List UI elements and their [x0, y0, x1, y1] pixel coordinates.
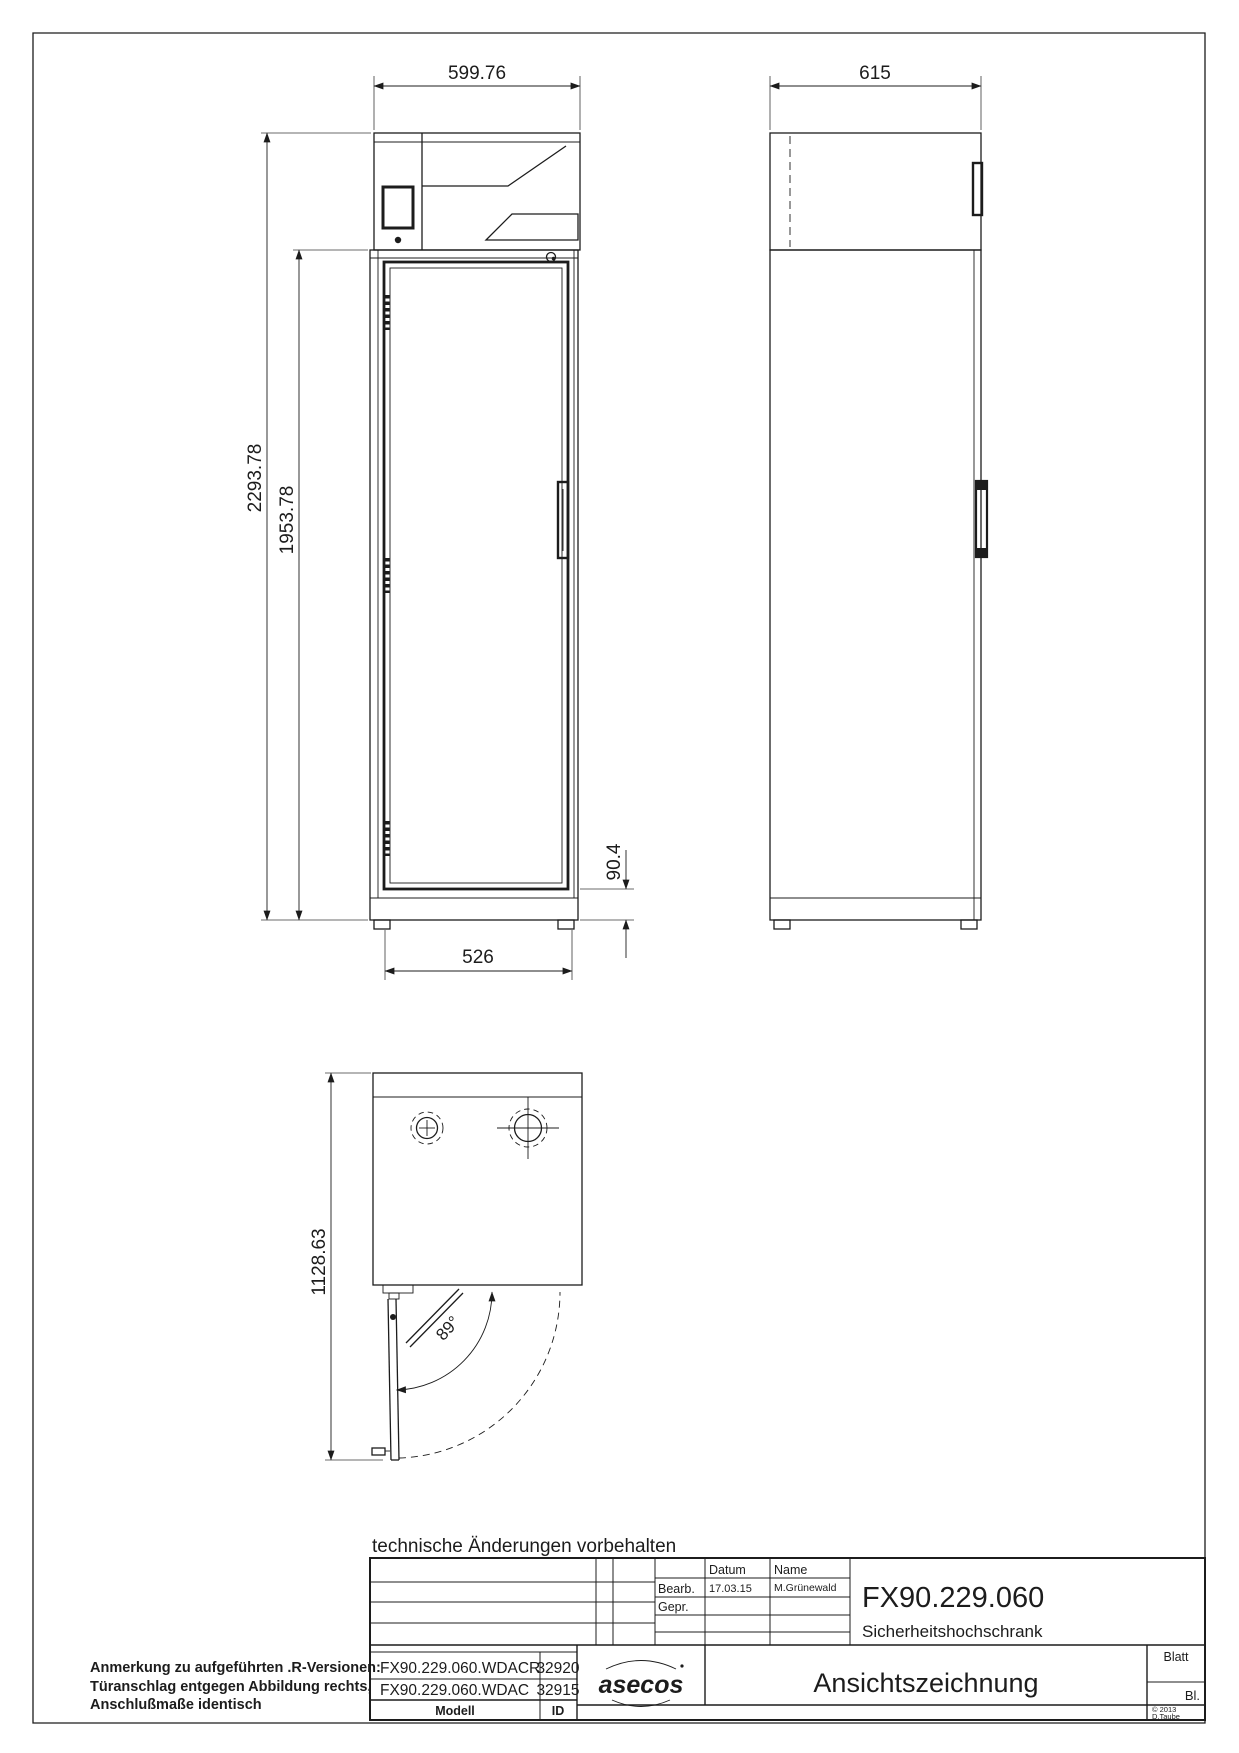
- dim-label-total-height: 2293.78: [245, 444, 266, 513]
- vent-port-right: [497, 1097, 559, 1159]
- tb-bearb-date: 17.03.15: [709, 1583, 752, 1595]
- dim-label-body-height: 1953.78: [277, 486, 298, 555]
- technical-drawing-canvas: 599.76 2293.78 1953.78 526 9: [0, 0, 1239, 1753]
- side-foot-right: [961, 920, 977, 929]
- dim-base-height: 90.4: [580, 843, 634, 958]
- dim-front-width: 599.76: [374, 63, 580, 130]
- tb-sheet-value: Bl.: [1185, 1688, 1200, 1703]
- asecos-logo-text: asecos: [599, 1671, 684, 1699]
- door-lock: [547, 253, 556, 262]
- open-door: [372, 1285, 413, 1460]
- dim-label-side-depth: 615: [859, 63, 891, 84]
- tb-sheet-label: Blatt: [1163, 1650, 1189, 1664]
- dim-body-height: 1953.78: [277, 250, 368, 920]
- drawing-sheet: 599.76 2293.78 1953.78 526 9: [0, 0, 1239, 1753]
- dim-label-door-angle: 89°: [432, 1312, 463, 1344]
- tb-row-gepr: Gepr.: [658, 1600, 689, 1614]
- tb-drawing-title: Ansichtszeichnung: [813, 1668, 1038, 1698]
- tb-col-modell: Modell: [435, 1704, 475, 1718]
- tb-part-number: FX90.229.060: [862, 1582, 1044, 1614]
- dim-door-angle: 89°: [397, 1292, 493, 1390]
- vent-port-left: [411, 1112, 443, 1144]
- remark-note: Anmerkung zu aufgeführten .R-Versionen: …: [90, 1660, 381, 1713]
- tb-col-id: ID: [552, 1704, 565, 1718]
- tb-row-bearb: Bearb.: [658, 1582, 695, 1596]
- tb-model-row-1-id: 32920: [536, 1660, 579, 1677]
- dim-plan-depth: 1128.63: [309, 1073, 383, 1460]
- remark-line-3: Anschlußmaße identisch: [90, 1697, 262, 1713]
- footer-note: technische Änderungen vorbehalten: [372, 1536, 676, 1557]
- dim-door-width: 526: [385, 930, 572, 980]
- dim-side-depth: 615: [770, 63, 981, 130]
- asecos-logo-mark: [680, 1664, 683, 1667]
- dim-label-base-height: 90.4: [604, 843, 625, 880]
- front-foot-left: [374, 920, 390, 929]
- tb-col-datum: Datum: [709, 1563, 746, 1577]
- front-foot-right: [558, 920, 574, 929]
- plan-view: 89° 1128.63: [309, 1073, 582, 1460]
- remark-line-2: Türanschlag entgegen Abbildung rechts,: [90, 1679, 371, 1695]
- tb-part-name: Sicherheitshochschrank: [862, 1622, 1043, 1641]
- front-door: [384, 262, 568, 889]
- tb-model-row-2-name: FX90.229.060.WDAC: [380, 1682, 529, 1699]
- front-view: 599.76 2293.78 1953.78 526 9: [245, 63, 634, 980]
- tb-bearb-name: M.Grünewald: [774, 1582, 837, 1594]
- dim-label-door-width: 526: [462, 947, 494, 968]
- asecos-logo-arc-top: [606, 1661, 676, 1670]
- side-foot-left: [774, 920, 790, 929]
- tb-model-row-1-name: FX90.229.060.WDACR: [380, 1660, 540, 1677]
- dim-label-plan-depth: 1128.63: [309, 1228, 330, 1295]
- asecos-logo: asecos: [599, 1661, 684, 1707]
- open-door-handle: [372, 1448, 385, 1455]
- remark-line-1: Anmerkung zu aufgeführten .R-Versionen:: [90, 1660, 381, 1676]
- filter-vent-slot-lower: [486, 214, 578, 240]
- dim-total-height: 2293.78: [245, 133, 371, 920]
- side-view: 615: [770, 63, 987, 929]
- tb-model-row-2-id: 32915: [536, 1682, 579, 1699]
- door-swing-arc: [399, 1292, 560, 1458]
- door-handle: [558, 482, 568, 558]
- dim-label-front-width: 599.76: [448, 63, 506, 84]
- filter-vent-slot-upper: [422, 146, 566, 186]
- tb-copyright-author: D.Taube: [1152, 1712, 1180, 1721]
- tb-col-name: Name: [774, 1563, 807, 1577]
- control-panel-led: [395, 237, 401, 243]
- control-panel-display: [383, 187, 413, 228]
- title-block: Datum Name Bearb. 17.03.15 M.Grünewald G…: [370, 1558, 1205, 1721]
